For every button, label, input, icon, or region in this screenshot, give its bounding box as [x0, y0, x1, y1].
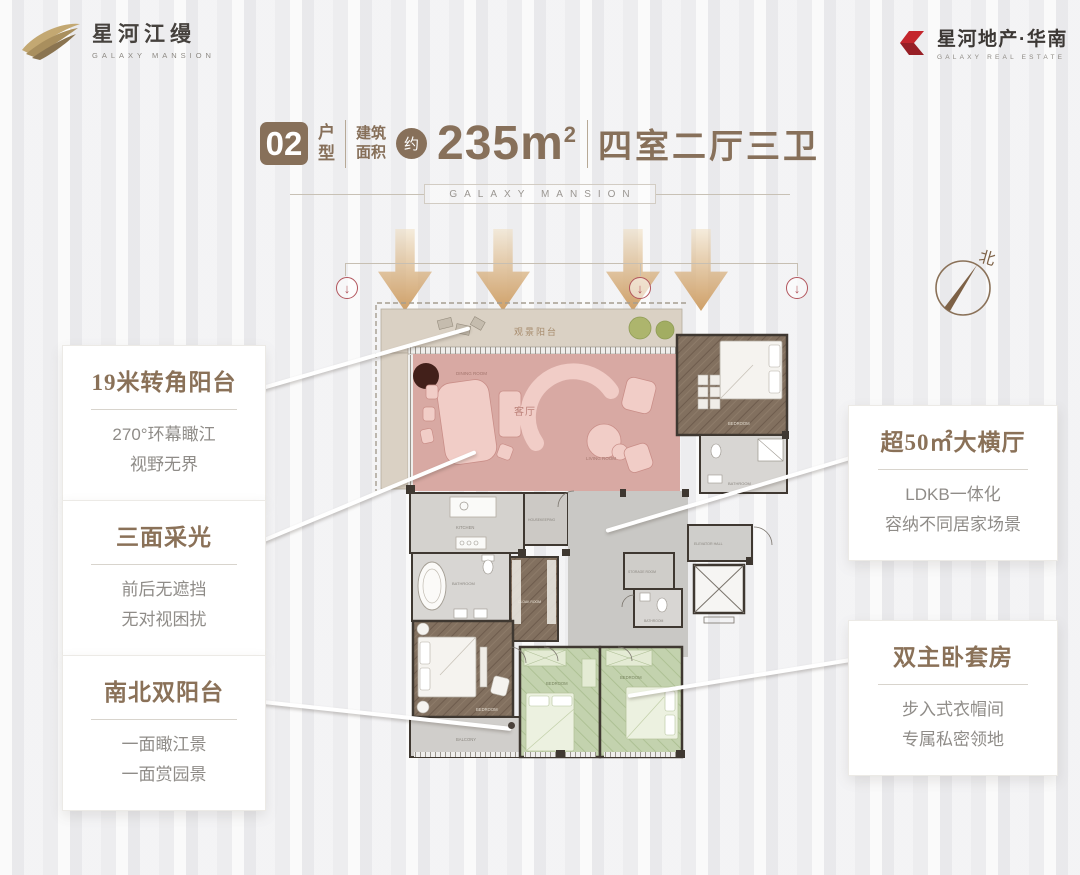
room-label: BATHROOM	[452, 581, 475, 586]
callout-three-side-light: 三面采光 前后无遮挡 无对视困扰	[62, 500, 266, 656]
compass-icon: 北	[928, 238, 1004, 324]
subtitle-text: GALAXY MANSION	[424, 184, 655, 204]
elevator	[694, 565, 744, 623]
callout-title: 双主卧套房	[857, 638, 1049, 672]
room-label: KITCHEN	[456, 525, 474, 530]
room-bathroom-master: BATHROOM	[412, 553, 510, 621]
unit-label: 户 型	[318, 123, 335, 164]
room-label: BATHROOM	[728, 481, 751, 486]
room-label: STORAGE ROOM	[628, 570, 656, 574]
approx-badge: 约	[396, 128, 427, 159]
callout-title: 三面采光	[71, 518, 257, 552]
callout-dual-master: 双主卧套房 步入式衣帽间 专属私密领地	[848, 620, 1058, 776]
orientation-line	[345, 263, 798, 264]
room-storage: STORAGE ROOM	[624, 553, 674, 589]
poster-page: { "header": { "logo_left": { "cn": "星河江缦…	[0, 0, 1080, 875]
room-label: BEDROOM	[476, 707, 498, 712]
unit-number-badge: 02	[260, 122, 308, 165]
corner-balcony-strip	[381, 353, 408, 489]
title-divider	[345, 120, 346, 168]
room-label: BATHROOM	[644, 619, 664, 623]
callout-title: 超50㎡大横厅	[857, 423, 1049, 457]
room-label: BALCONY	[456, 737, 476, 742]
callout-double-balcony: 南北双阳台 一面瞰江景 一面赏园景	[62, 655, 266, 811]
brand-name-cn: 星河江缦	[92, 18, 215, 48]
room-label: BEDROOM	[546, 681, 568, 686]
room-label: 观景阳台	[514, 326, 558, 337]
room-bedroom-green1: BEDROOM	[520, 647, 600, 757]
room-label: ELEVATOR HALL	[694, 542, 723, 546]
hex-logo-icon	[893, 26, 929, 60]
tree-icon	[656, 321, 674, 339]
callout-title: 南北双阳台	[71, 673, 257, 707]
room-label: LIVING ROOM	[586, 456, 616, 461]
callout-title: 19米转角阳台	[71, 363, 257, 397]
room-label: DINING ROOM	[456, 371, 487, 376]
brand-logo-left: 星河江缦 GALAXY MANSION	[20, 14, 215, 64]
door-arc	[754, 527, 772, 545]
room-bedroom-green2: BEDROOM	[600, 647, 682, 757]
room-view-balcony: 观景阳台	[381, 309, 682, 353]
pointer-anchor-dot	[508, 722, 515, 729]
title-divider	[587, 120, 588, 168]
window-strip	[408, 347, 682, 354]
room-cloak: CLOAK ROOM	[510, 557, 558, 641]
developer-name-cn: 星河地产·华南	[937, 24, 1068, 51]
down-arrow-icon: ↓	[336, 277, 358, 299]
room-label: HOUSEKEEPING	[528, 518, 555, 522]
room-bedroom-suite-north: BEDROOM BATHROOM	[677, 335, 787, 493]
room-bathroom-mid: BATHROOM	[634, 589, 682, 627]
developer-name-en: GALAXY REAL ESTATE	[937, 54, 1068, 61]
tree-icon	[629, 317, 651, 339]
room-label: BEDROOM	[728, 421, 750, 426]
callout-corner-balcony: 19米转角阳台 270°环幕瞰江 视野无界	[62, 345, 266, 501]
room-label: 客厅	[514, 405, 536, 418]
layout-text: 四室二厅三卫	[598, 119, 820, 168]
callout-grand-hall: 超50㎡大横厅 LDKB一体化 容纳不同居家场景	[848, 405, 1058, 561]
room-bedroom-master: BEDROOM	[413, 621, 513, 717]
area-label: 建筑 面积	[356, 125, 386, 163]
floorplan: 观景阳台 DINING ROOM 客厅 LIVING ROOM	[368, 295, 798, 775]
room-label: BEDROOM	[620, 675, 642, 680]
room-living: DINING ROOM 客厅 LIVING ROOM	[413, 354, 680, 491]
brand-logo-right: 星河地产·华南 GALAXY REAL ESTATE	[893, 24, 1068, 61]
room-kitchen: KITCHEN	[410, 493, 524, 553]
subtitle: GALAXY MANSION	[290, 184, 790, 204]
room-label: CLOAK ROOM	[518, 600, 541, 604]
room-housekeeping: HOUSEKEEPING	[524, 493, 568, 545]
area-value: 235m2	[437, 116, 577, 171]
feather-logo-icon	[20, 14, 84, 64]
unit-title: 02 户 型 建筑 面积 约 235m2 四室二厅三卫	[0, 116, 1080, 171]
brand-name-en: GALAXY MANSION	[92, 51, 215, 60]
